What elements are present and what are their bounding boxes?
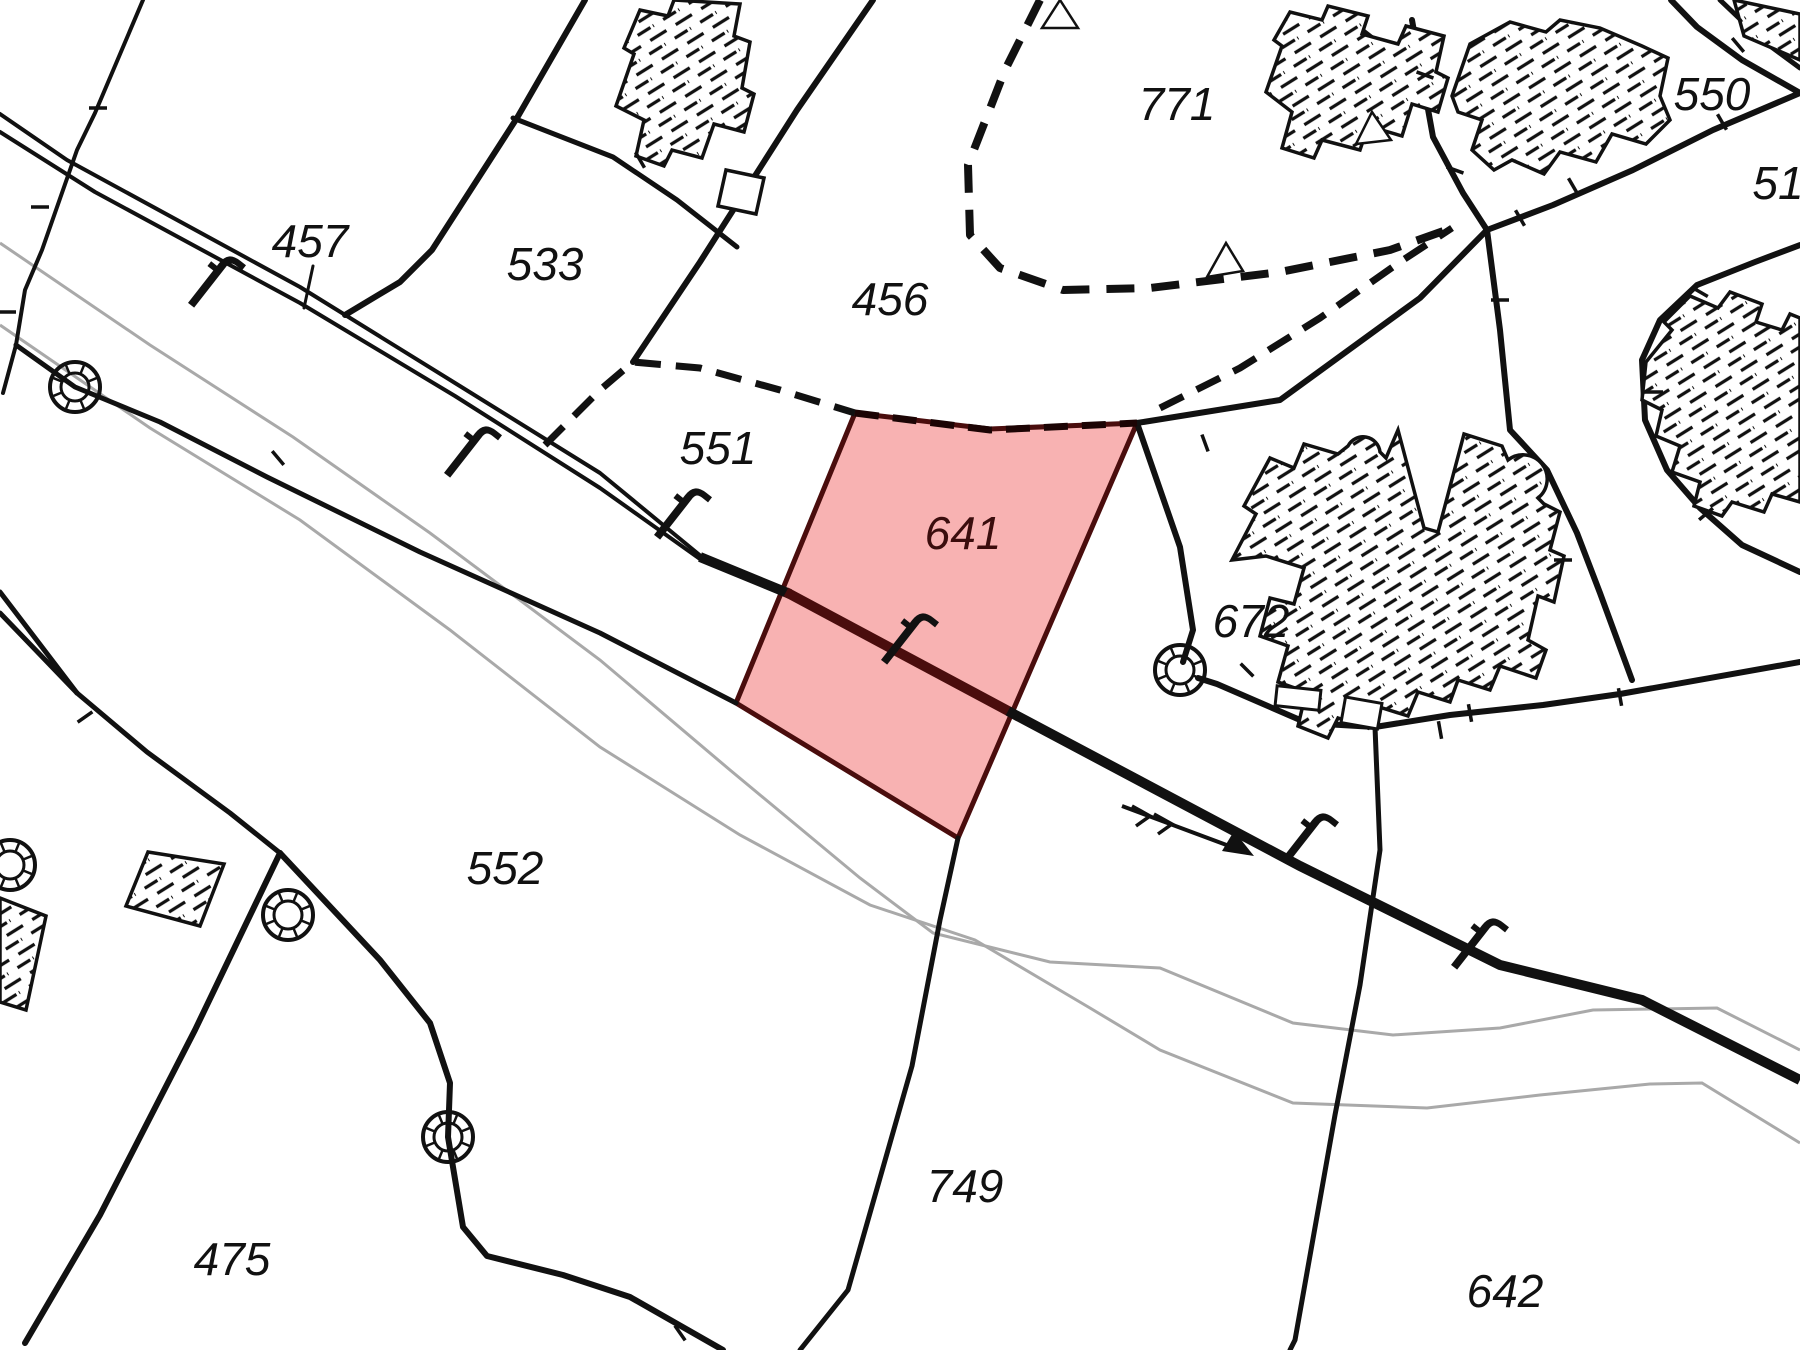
parcel-label-642: 642 bbox=[1467, 1265, 1544, 1317]
utility-line bbox=[1008, 711, 1800, 1080]
boundary-tick bbox=[1468, 704, 1471, 722]
section-mark: ſ bbox=[1431, 897, 1518, 996]
parcel-label-475: 475 bbox=[194, 1233, 271, 1285]
boundary-tick bbox=[1692, 288, 1708, 297]
label-leader-457 bbox=[304, 266, 313, 308]
boundary-tick bbox=[1438, 721, 1441, 739]
boundary-672-west bbox=[1137, 423, 1193, 662]
road-edge-b bbox=[0, 132, 700, 559]
boundary-tick bbox=[78, 712, 93, 722]
parcel-label-457: 457 bbox=[272, 215, 350, 267]
parcel-label-456: 456 bbox=[852, 273, 929, 325]
map-svg: ſſſſſſ4575334567715505155164167255247574… bbox=[0, 0, 1800, 1350]
building-sw-b bbox=[0, 898, 46, 1010]
well-symbol bbox=[0, 840, 35, 890]
building-sw-a bbox=[126, 852, 224, 926]
boundary-tick bbox=[272, 451, 284, 465]
section-mark: ſ bbox=[424, 405, 511, 504]
boundary-551-552 bbox=[16, 345, 736, 703]
parcel-label-552: 552 bbox=[467, 842, 544, 894]
parcel-label-551: 551 bbox=[680, 422, 757, 474]
survey-triangle bbox=[1042, 0, 1078, 28]
parcel-label-771: 771 bbox=[1139, 78, 1216, 130]
section-mark: ſ bbox=[1261, 792, 1348, 891]
fence-line-nw bbox=[3, 0, 143, 393]
highlighted-parcel-641[interactable] bbox=[736, 413, 1137, 838]
parcel-label-533: 533 bbox=[507, 238, 584, 290]
boundary-475-ne bbox=[77, 693, 280, 853]
section-mark: ſ bbox=[168, 235, 255, 334]
parcel-label-51: 51 bbox=[1752, 157, 1800, 209]
building-east-edge bbox=[1642, 292, 1800, 516]
parcel-label-749: 749 bbox=[927, 1160, 1004, 1212]
parcel-label-641: 641 bbox=[925, 507, 1002, 559]
boundary-552-749 bbox=[800, 838, 958, 1350]
parcel-label-550: 550 bbox=[1674, 68, 1751, 120]
boundary-tick bbox=[1241, 664, 1254, 677]
boundary-tick bbox=[1732, 38, 1744, 52]
survey-triangle bbox=[1207, 243, 1243, 277]
well-symbol bbox=[263, 890, 313, 940]
boundary-475-east bbox=[280, 853, 723, 1350]
boundary-tick bbox=[1202, 435, 1208, 452]
boundary-tick bbox=[1569, 178, 1578, 194]
flow-arrow-chevron bbox=[1154, 814, 1172, 834]
culvert-rect-symbol bbox=[1275, 686, 1321, 710]
boundary-v-b bbox=[0, 613, 77, 693]
building-550 bbox=[1452, 20, 1670, 174]
culvert-rect-symbol bbox=[1341, 697, 1382, 729]
flow-arrow-chevron bbox=[1132, 806, 1150, 826]
parcel-label-672: 672 bbox=[1213, 595, 1290, 647]
well-symbol bbox=[1155, 645, 1205, 695]
section-mark: ſ bbox=[634, 467, 721, 566]
cadastral-map-canvas[interactable]: ſſſſſſ4575334567715505155164167255247574… bbox=[0, 0, 1800, 1350]
building-533-annex bbox=[718, 170, 764, 214]
building-533 bbox=[616, 0, 754, 166]
utility-line bbox=[700, 557, 790, 594]
building-nw-of-550 bbox=[1266, 6, 1448, 158]
